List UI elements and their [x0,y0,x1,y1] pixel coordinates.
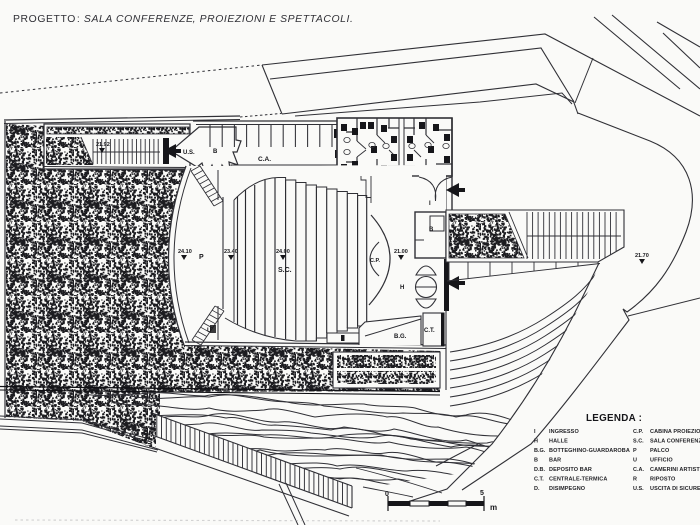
svg-text:BAR: BAR [549,458,561,464]
svg-text:C.P.: C.P. [370,258,380,264]
svg-text:B.G.: B.G. [394,334,407,340]
svg-text:C.P.: C.P. [633,429,643,435]
svg-text:U.S.: U.S. [633,486,644,492]
svg-text:DISIMPEGNO: DISIMPEGNO [549,486,586,492]
svg-text:R: R [633,477,637,483]
svg-text:S.C.: S.C. [278,267,292,274]
svg-text:DEPOSITO BAR: DEPOSITO BAR [549,467,592,473]
svg-text:U.S.: U.S. [183,150,195,156]
svg-text:B: B [213,149,218,155]
svg-text:HALLE: HALLE [549,439,568,445]
svg-text:C.A.: C.A. [633,467,644,473]
svg-text:S.C.: S.C. [633,439,644,445]
svg-text:P: P [633,448,637,454]
svg-text:LEGENDA :: LEGENDA : [586,413,642,424]
svg-text:U: U [633,458,637,464]
svg-text:CABINA PROIEZIONE: CABINA PROIEZIONE [650,429,700,435]
svg-text:21.70: 21.70 [635,253,649,259]
svg-text:5: 5 [480,490,484,497]
svg-text:D.: D. [534,486,540,492]
svg-text:BOTTEGHINO-GUARDAROBA: BOTTEGHINO-GUARDAROBA [549,448,630,454]
svg-text:H: H [534,439,538,445]
svg-text:CAMERINI ARTISTI: CAMERINI ARTISTI [650,467,700,473]
svg-text:D.B.: D.B. [534,467,545,473]
svg-text:B: B [429,227,434,233]
svg-text:C.T.: C.T. [534,477,544,483]
svg-text:C.A.: C.A. [258,156,271,163]
svg-text:UFFICIO: UFFICIO [650,458,673,464]
svg-text:RIPOSTO: RIPOSTO [650,477,676,483]
svg-text:H: H [400,285,404,291]
svg-text:INGRESSO: INGRESSO [549,429,579,435]
svg-text:24.00: 24.00 [276,249,290,255]
svg-text:B: B [534,458,538,464]
svg-text:23.40: 23.40 [224,249,238,255]
svg-text:USCITA DI SICUREZZA: USCITA DI SICUREZZA [650,486,700,492]
svg-text:21.00: 21.00 [394,249,408,255]
svg-text:P: P [199,254,204,261]
svg-text:m: m [490,503,497,512]
svg-text:CENTRALE-TERMICA: CENTRALE-TERMICA [549,477,607,483]
svg-text:SALA CONFERENZE: SALA CONFERENZE [650,439,700,445]
svg-text:C.T.: C.T. [424,328,435,334]
svg-text:PROGETTO: SALA CONFERENZE, P: PROGETTO: SALA CONFERENZE, PROIEZIONI E … [13,14,354,25]
svg-text:24.10: 24.10 [178,249,192,255]
svg-text:PALCO: PALCO [650,448,670,454]
svg-text:21.92: 21.92 [96,142,110,148]
svg-text:B.G.: B.G. [534,448,546,454]
